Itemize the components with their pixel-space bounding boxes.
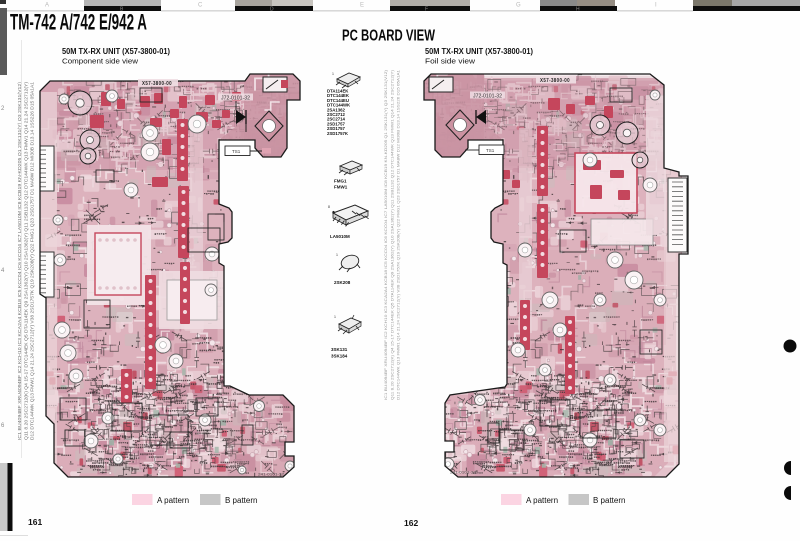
- svg-text:E: E: [360, 3, 364, 9]
- svg-text:D: D: [270, 7, 274, 13]
- svg-text:B pattern: B pattern: [593, 496, 625, 505]
- svg-text:TS1: TS1: [486, 148, 495, 153]
- svg-text:241-0101-32: 241-0101-32: [450, 471, 476, 475]
- svg-text:50M TX-RX UNIT (X57-3800-01): 50M TX-RX UNIT (X57-3800-01): [425, 47, 533, 56]
- svg-text:X57-3800-00: X57-3800-00: [142, 81, 172, 87]
- svg-text:1: 1: [336, 253, 338, 257]
- svg-text:X57-3800-00: X57-3800-00: [540, 78, 570, 84]
- svg-text:C: C: [198, 3, 203, 9]
- svg-text:50M TX-RX UNIT (X57-3800-01): 50M TX-RX UNIT (X57-3800-01): [62, 47, 170, 56]
- svg-text:A pattern: A pattern: [526, 496, 558, 505]
- svg-text:D12 DTC144WK Q13 FMW1 Q14 21.2: D12 DTC144WK Q13 FMW1 Q14 21.24 2SC2712(…: [30, 81, 35, 440]
- svg-text:8: 8: [328, 205, 330, 209]
- svg-text:3SK184: 3SK184: [331, 354, 348, 359]
- svg-text:PC BOARD VIEW: PC BOARD VIEW: [342, 28, 436, 45]
- svg-text:241-0101-32: 241-0101-32: [258, 473, 284, 477]
- svg-text:A pattern: A pattern: [157, 496, 189, 505]
- svg-text:1: 1: [332, 72, 334, 76]
- svg-text:F: F: [425, 7, 428, 13]
- svg-text:B pattern: B pattern: [225, 496, 257, 505]
- svg-text:H: H: [576, 7, 580, 13]
- svg-text:2SK208: 2SK208: [334, 280, 351, 285]
- svg-text:A: A: [45, 3, 49, 9]
- svg-text:IC1 BU4094BF XRU4094BF IC2 KCH: IC1 BU4094BF XRU4094BF IC2 KCH10 IC3 KCA…: [383, 69, 388, 400]
- svg-text:1: 1: [334, 315, 336, 319]
- svg-text:3SK131: 3SK131: [331, 347, 348, 352]
- svg-text:Q11 8.20 2SC2712(K) Q4 15-17 D: Q11 8.20 2SC2712(K) Q4 15-17 DTC144EK Q5…: [390, 69, 395, 400]
- svg-text:Q11 8.20 2SC2712(K) Q4 15-17 D: Q11 8.20 2SC2712(K) Q4 15-17 DTC144EK Q5…: [24, 81, 29, 440]
- svg-text:162: 162: [404, 518, 418, 528]
- svg-text:G: G: [516, 3, 521, 9]
- svg-text:D12 DTC144WK Q13 FMW1 Q14 21.2: D12 DTC144WK Q13 FMW1 Q14 21.24 2SC2712(…: [396, 69, 401, 400]
- svg-text:FMG1: FMG1: [334, 179, 347, 184]
- svg-text:161: 161: [28, 517, 42, 527]
- svg-text:TS1: TS1: [232, 149, 241, 154]
- svg-text:LA5010M: LA5010M: [330, 234, 350, 239]
- svg-text:J72-0101-32: J72-0101-32: [221, 96, 250, 102]
- svg-text:Foil side view: Foil side view: [425, 57, 476, 66]
- svg-text:J72-0101-32: J72-0101-32: [473, 94, 502, 100]
- svg-text:FMW1: FMW1: [334, 185, 348, 190]
- svg-text:Component side view: Component side view: [62, 57, 139, 66]
- svg-text:TM-742 A/742 E/942 A: TM-742 A/742 E/942 A: [10, 10, 147, 35]
- svg-text:2SD1757K: 2SD1757K: [327, 131, 349, 136]
